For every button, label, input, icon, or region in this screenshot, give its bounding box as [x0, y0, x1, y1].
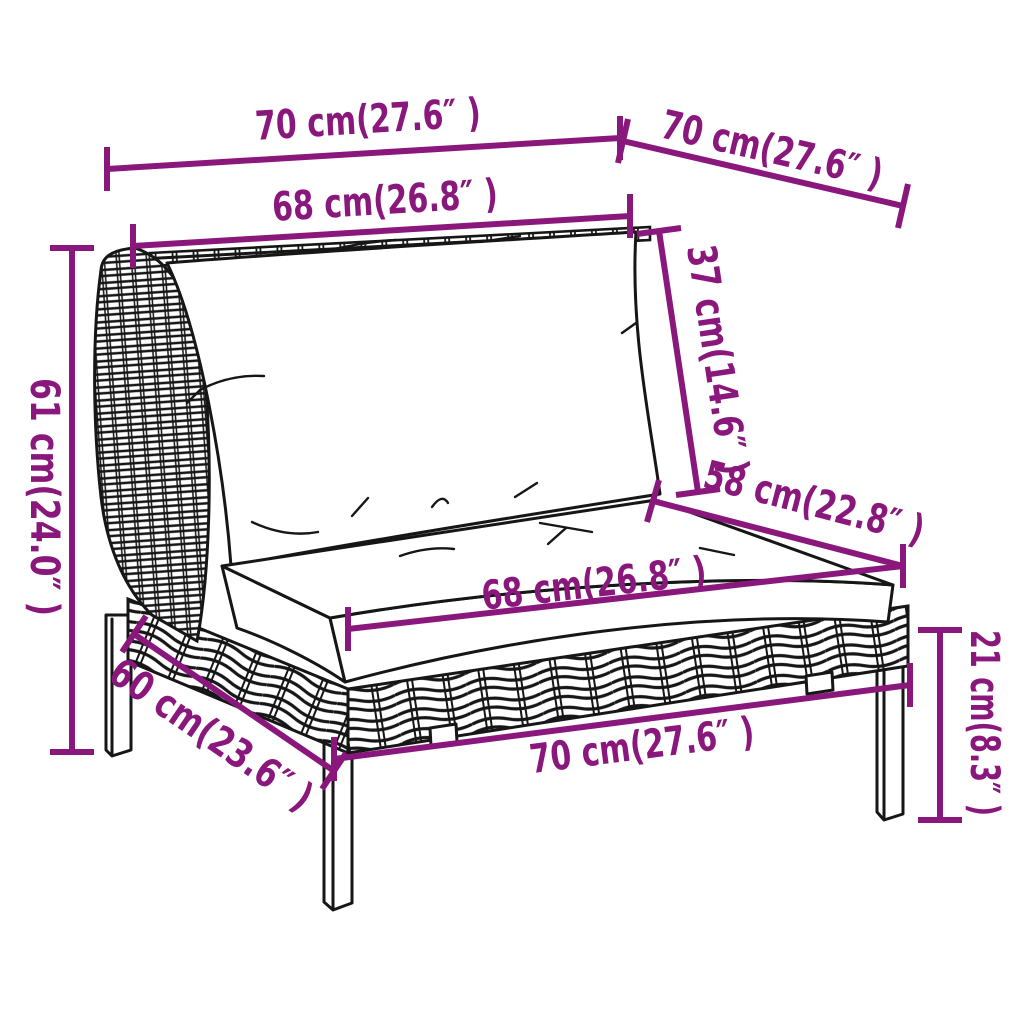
- dimension-side-top-depth-label: 70 cm(27.6″ ): [657, 102, 888, 198]
- right-leg: [877, 656, 903, 820]
- dimension-seat-height-line: [918, 630, 962, 820]
- sofa-dimension-drawing: 70 cm(27.6″ ) 70 cm(27.6″ ) 68 cm(26.8″ …: [0, 0, 1024, 1024]
- dimension-side-top-depth: 70 cm(27.6″ ): [618, 102, 908, 228]
- dimension-total-height-label: 61 cm(24.0″ ): [21, 378, 67, 616]
- dimension-total-height: 61 cm(24.0″ ): [21, 248, 94, 752]
- dimension-back-top-width-label: 70 cm(27.6″ ): [254, 90, 482, 150]
- dimension-back-cushion-width-label: 68 cm(26.8″ ): [271, 171, 499, 231]
- base-bracket-right: [806, 672, 833, 694]
- dimension-back-top-width: 70 cm(27.6″ ): [107, 90, 620, 191]
- dimension-seat-height: 21 cm(8.3″ ): [918, 630, 1007, 820]
- dimension-diagram: 70 cm(27.6″ ) 70 cm(27.6″ ) 68 cm(26.8″ …: [0, 0, 1024, 1024]
- dimension-seat-height-label: 21 cm(8.3″ ): [961, 630, 1007, 816]
- sofa-line-art: [95, 227, 908, 910]
